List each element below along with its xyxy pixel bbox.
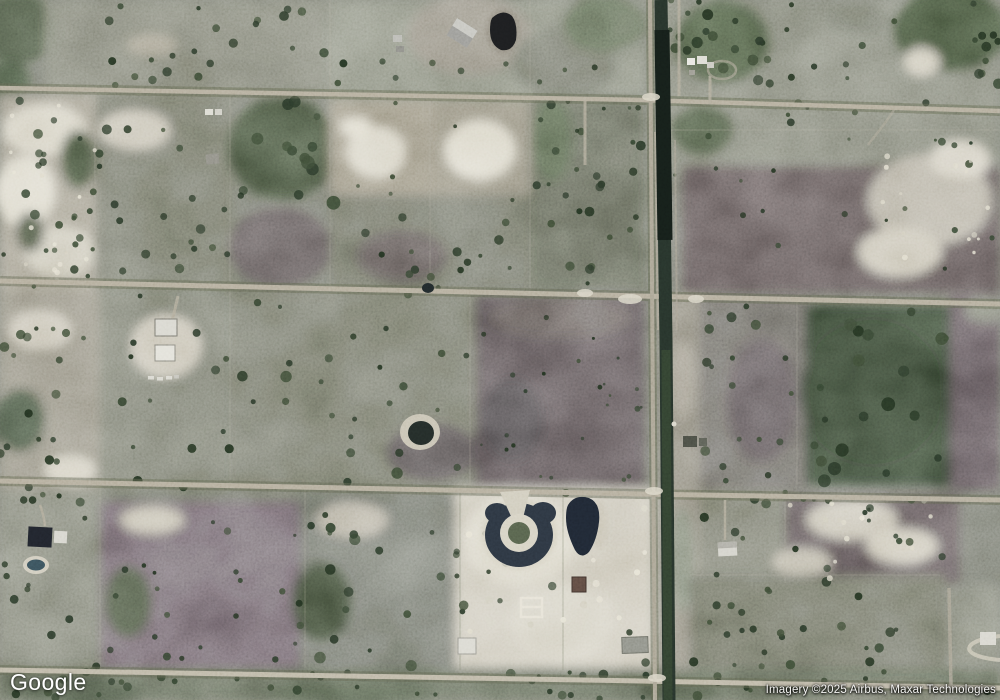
satellite-imagery (0, 0, 1000, 700)
imagery-attribution: Imagery ©2025 Airbus, Maxar Technologies (766, 684, 996, 696)
grain-overlay (0, 0, 1000, 700)
google-logo-text: Google (10, 669, 87, 695)
attribution-text: Imagery ©2025 Airbus, Maxar Technologies (766, 684, 996, 696)
google-logo[interactable]: Google (10, 669, 87, 696)
map-viewport[interactable]: Google Imagery ©2025 Airbus, Maxar Techn… (0, 0, 1000, 700)
